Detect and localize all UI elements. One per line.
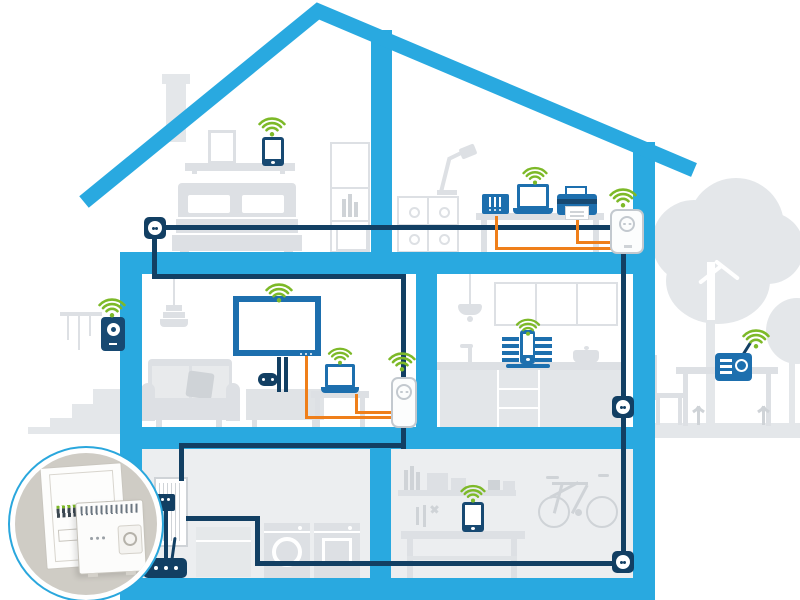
bicycle-saddle [546, 476, 559, 479]
game-console [284, 357, 288, 392]
router-led [174, 566, 178, 570]
hanging-tool [423, 505, 426, 527]
shelf-books [416, 472, 420, 490]
nas-slot [499, 197, 501, 207]
wind-chime-string [89, 316, 91, 336]
cable-printer-run [576, 241, 614, 244]
shelf-box [427, 473, 448, 490]
sink-faucet [468, 346, 472, 362]
sink-faucet-spout [460, 344, 473, 348]
shelf-box [503, 481, 515, 490]
phone-home-button [271, 161, 275, 164]
cable-attic-socket-drop [152, 237, 157, 279]
basement-floor [120, 578, 655, 600]
cable-basement-bottom [255, 561, 623, 566]
dock-speaker-bar [502, 337, 519, 341]
wifi-signal-icon [738, 324, 774, 350]
wifi-signal-icon [456, 480, 490, 504]
sheet-line [570, 211, 584, 213]
bed-base [172, 233, 302, 251]
nas-slot [494, 197, 496, 207]
powerline-wall-socket [612, 551, 634, 573]
cabinet-knob [439, 207, 450, 218]
bed-pillow [240, 193, 286, 215]
cabinet-knob [439, 234, 450, 245]
basement-divider-wall [370, 449, 391, 578]
wifi-laptop [325, 364, 355, 388]
wardrobe-books [354, 202, 358, 217]
radio-speaker-line [720, 371, 732, 374]
desk-lamp-base [437, 190, 457, 195]
dock-speaker-bar [535, 358, 552, 362]
wifi-radio [715, 353, 752, 381]
fuse-box-closeup-inset [8, 446, 164, 600]
dryer [314, 523, 360, 578]
hanging-tool [416, 507, 419, 525]
adapter-port [624, 245, 632, 248]
dock-speaker-bar [535, 344, 552, 348]
wifi-door-intercom [101, 317, 125, 351]
dock-speaker-bar [502, 358, 519, 362]
cabinet-divider [538, 370, 540, 427]
cabinet-knob [409, 207, 420, 218]
cable-attic-horizontal [158, 225, 629, 230]
nas-led [499, 209, 501, 211]
router-led [164, 566, 168, 570]
pot-lid-knob [584, 346, 589, 350]
bicycle-wheel [586, 496, 618, 528]
cable-tv-drop [305, 353, 308, 419]
nas-led [494, 209, 496, 211]
shelf-books [410, 466, 414, 490]
utility-cabinet-line [196, 540, 251, 542]
bed-pillow [186, 193, 232, 215]
nas-server [482, 194, 509, 214]
inset-din-socket [122, 532, 137, 547]
sofa-seat [148, 398, 240, 420]
powerline-wifi-adapter [610, 209, 644, 254]
pendant-cord [469, 274, 471, 304]
cable-nas-drop [495, 216, 498, 250]
cable-laptop-run [355, 411, 394, 414]
dock-speaker-bar [502, 351, 519, 355]
printer-output-sheet [565, 206, 589, 220]
cable-fusebox-out [186, 516, 258, 521]
powerline-wifi-adapter [391, 377, 417, 428]
dock-speaker-bar [535, 351, 552, 355]
house-network-illustration [0, 0, 800, 600]
wifi-signal-icon [261, 278, 297, 304]
nas-slot [489, 197, 491, 207]
pendant-cord [173, 277, 175, 305]
inset-din-socket-recess [117, 524, 142, 554]
tree-canopy-circle [666, 238, 770, 324]
wardrobe-books [342, 199, 346, 217]
attic-floor [120, 252, 655, 274]
chimney-body [166, 84, 186, 142]
powerline-wall-socket [144, 217, 166, 239]
side-table-leg [315, 398, 320, 428]
wardrobe-shelf-line [332, 187, 368, 189]
phone-screen [265, 140, 281, 159]
cabinet-knob [409, 234, 420, 245]
garden-step [93, 389, 122, 433]
shelf-support [192, 171, 197, 174]
wifi-signal-icon [254, 112, 290, 138]
laptop-base [513, 208, 553, 214]
wifi-signal-icon [512, 314, 544, 337]
radio-dial [735, 359, 748, 372]
wind-chime-string [78, 316, 80, 350]
cabinet-divider [576, 284, 578, 324]
pendant-shade-tier [160, 319, 188, 327]
wifi-signal-icon [94, 293, 130, 319]
wifi-laptop [517, 184, 549, 209]
kitchen-base-cabinets [440, 370, 621, 427]
garden-chair-leg [656, 398, 660, 425]
garden-chair-leg [678, 398, 682, 425]
pendant-shade [458, 304, 482, 315]
wifi-signal-icon [518, 162, 552, 186]
ground-band-right [655, 423, 800, 438]
printer-band [557, 199, 597, 204]
inset-din-adapter [75, 499, 147, 574]
pendant-shade-tier [163, 312, 185, 318]
desk-lamp-arm [439, 158, 452, 194]
inset-din-led [90, 537, 93, 540]
pendant-bulb [467, 316, 473, 322]
dock-speaker-bar [535, 337, 552, 341]
workbench-top [401, 531, 525, 539]
cable-basement-ceiling [179, 443, 406, 448]
washing-machine [264, 523, 310, 578]
chimney-cap [162, 74, 190, 84]
drawer-line [499, 388, 538, 390]
inset-din-vents [80, 504, 138, 516]
shelf-books [404, 470, 408, 490]
wardrobe-drawer [336, 228, 368, 251]
game-console [277, 357, 281, 392]
garden-table-leg [683, 374, 688, 426]
bicycle-handlebar [598, 474, 609, 477]
utility-cabinet [196, 527, 251, 577]
wifi-tablet [462, 502, 484, 532]
inset-photo [15, 453, 157, 595]
gamepad [258, 373, 278, 386]
cable-tv-run [305, 416, 394, 419]
dock-base [506, 364, 550, 368]
picture-frame [208, 130, 236, 164]
wardrobe [330, 142, 370, 253]
radio-speaker-line [720, 365, 732, 368]
cooking-pot [573, 350, 599, 363]
nas-led [489, 209, 491, 211]
gamepad-button [271, 378, 274, 381]
tablet-screen [465, 505, 481, 525]
router-led [154, 566, 158, 570]
washer-panel-line [264, 531, 310, 533]
tree-trunk-upper [707, 262, 715, 324]
gamepad-button [262, 378, 265, 381]
washer-knob [298, 526, 302, 530]
intercom-lens-dot [111, 327, 116, 332]
intercom-speaker-slot [109, 343, 117, 345]
tv-indicator-dot [310, 353, 313, 356]
tablet-home-button [471, 527, 475, 530]
attic-divider-wall [371, 30, 392, 274]
drawer-line [499, 407, 538, 409]
wardrobe-shelf-line [332, 220, 368, 222]
workbench-brace [407, 556, 517, 560]
smart-tv [233, 296, 321, 356]
garden-table-leg [766, 374, 771, 426]
wardrobe-books [348, 194, 352, 217]
cable-fusebox-to-router [164, 509, 168, 558]
small-tree-trunk [789, 356, 795, 427]
dryer-knob [348, 526, 352, 530]
bicycle [536, 470, 622, 530]
wifi-signal-icon [605, 183, 641, 209]
inset-din-foot [126, 571, 136, 576]
cable-nas-run [495, 247, 614, 250]
garden-step [72, 404, 95, 433]
pendant-shade-tier [166, 305, 182, 311]
cable-to-fusebox [179, 443, 184, 481]
desk-lamp-head [459, 143, 478, 159]
powerline-wall-socket [612, 396, 634, 418]
cabinet-divider [497, 370, 499, 427]
wifi-signal-icon [384, 347, 420, 373]
radio-speaker-line [720, 359, 732, 362]
phone-screen [523, 334, 533, 355]
shelf-support [280, 171, 285, 174]
cable-basement-mid-vertical [255, 516, 260, 566]
wifi-smartphone [262, 137, 284, 166]
inset-din-foot [88, 573, 98, 578]
sofa-throw-pillow [185, 370, 214, 399]
sofa-back-cushion [152, 366, 189, 398]
dock-speaker-bar [502, 344, 519, 348]
sheet-line [570, 215, 584, 217]
laptop-base [321, 387, 359, 393]
bicycle-crank [575, 509, 582, 516]
wind-chime-string [67, 316, 69, 340]
garden-step [50, 418, 74, 433]
dryer-panel-line [314, 531, 360, 533]
din-adapter-led [161, 498, 164, 501]
din-adapter-led [167, 498, 170, 501]
phone-home-button [526, 358, 530, 361]
wifi-signal-icon [324, 343, 356, 366]
